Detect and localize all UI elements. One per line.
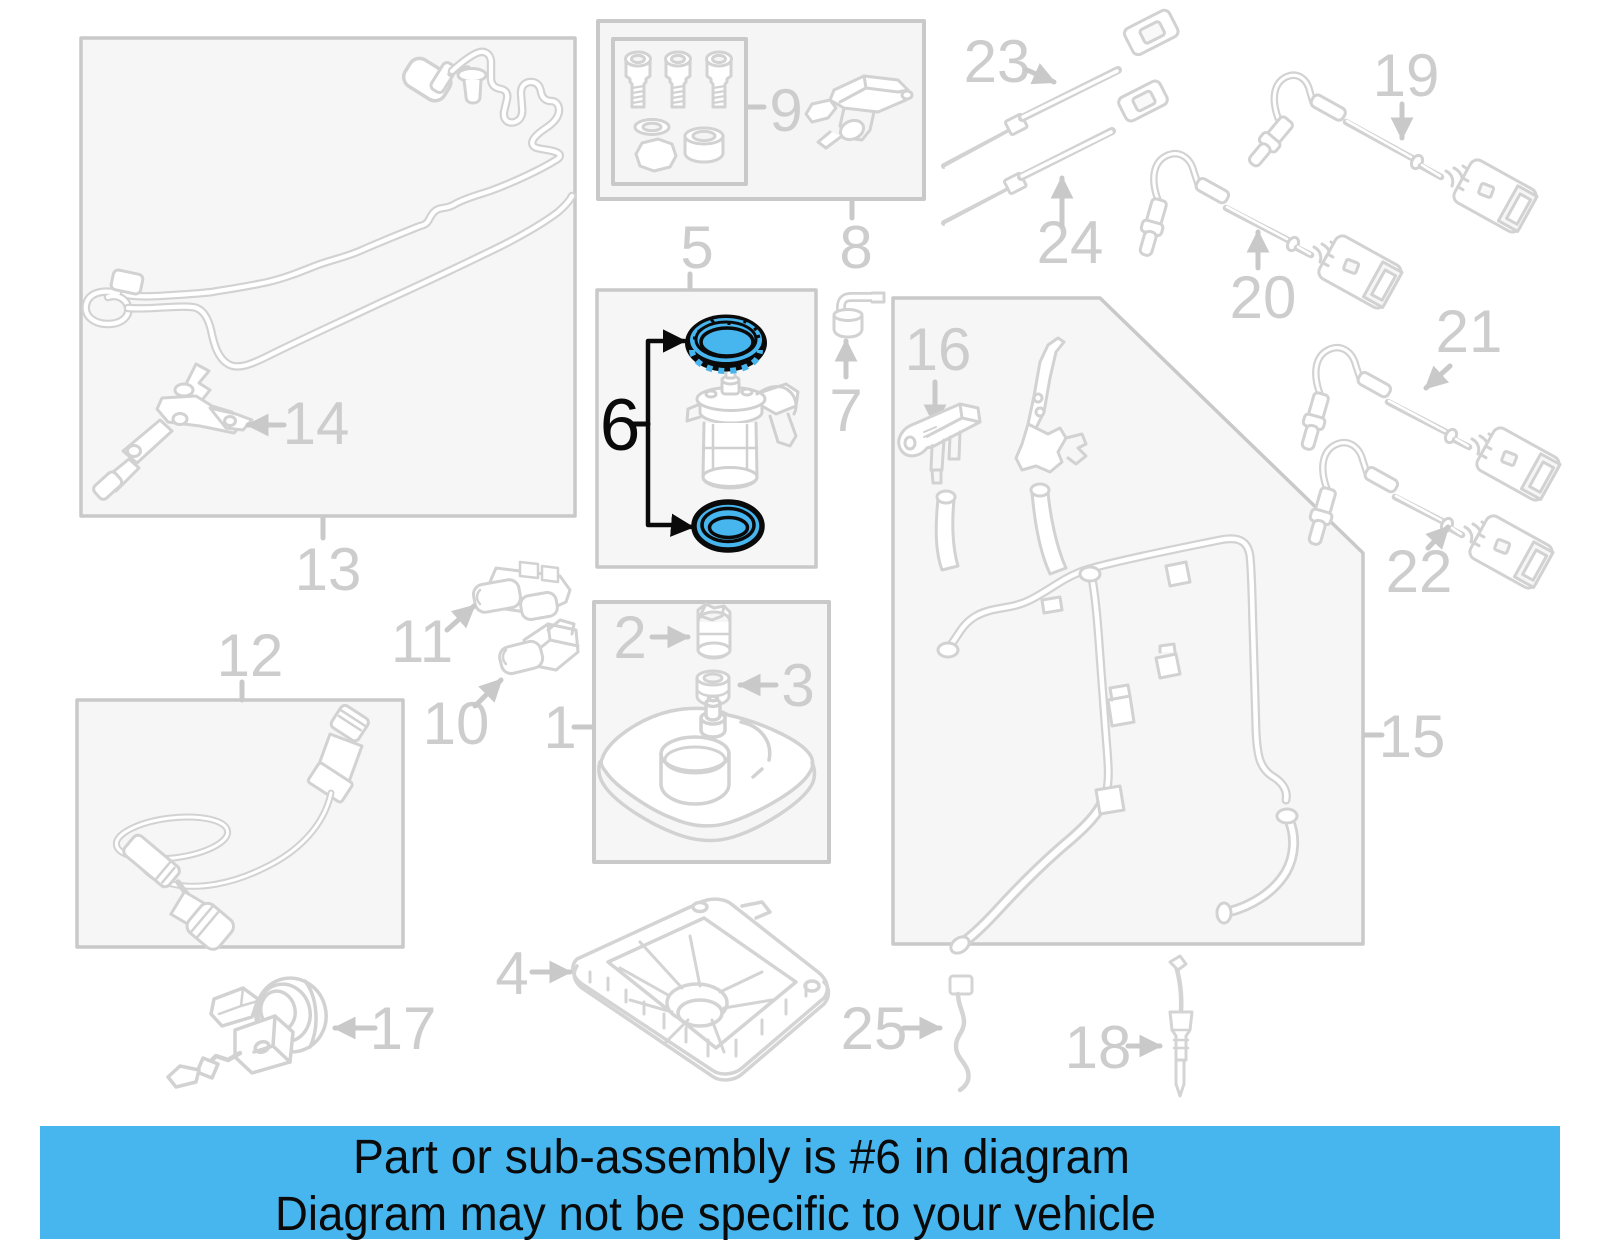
- svg-text:23: 23: [964, 28, 1031, 95]
- svg-text:22: 22: [1386, 538, 1453, 605]
- svg-text:15: 15: [1379, 703, 1446, 770]
- svg-text:17: 17: [370, 995, 437, 1062]
- svg-text:13: 13: [295, 536, 362, 603]
- svg-text:7: 7: [829, 377, 862, 444]
- svg-text:4: 4: [495, 940, 528, 1007]
- svg-text:3: 3: [781, 652, 814, 719]
- svg-text:16: 16: [905, 316, 972, 383]
- svg-text:8: 8: [839, 214, 872, 281]
- svg-text:11: 11: [391, 608, 453, 675]
- svg-text:14: 14: [283, 390, 350, 457]
- svg-text:9: 9: [769, 77, 802, 144]
- svg-text:12: 12: [217, 622, 284, 689]
- svg-text:6: 6: [600, 385, 641, 466]
- svg-text:Part or sub-assembly is #6 in: Part or sub-assembly is #6 in diagram: [353, 1131, 1130, 1184]
- svg-text:21: 21: [1436, 298, 1503, 365]
- svg-text:2: 2: [613, 604, 646, 671]
- svg-text:5: 5: [680, 214, 713, 281]
- svg-text:Diagram may not be specific to: Diagram may not be specific to your vehi…: [275, 1188, 1156, 1241]
- svg-text:18: 18: [1065, 1014, 1132, 1081]
- svg-text:24: 24: [1037, 209, 1104, 276]
- svg-text:25: 25: [841, 995, 908, 1062]
- svg-text:20: 20: [1230, 264, 1297, 331]
- svg-text:19: 19: [1373, 42, 1440, 109]
